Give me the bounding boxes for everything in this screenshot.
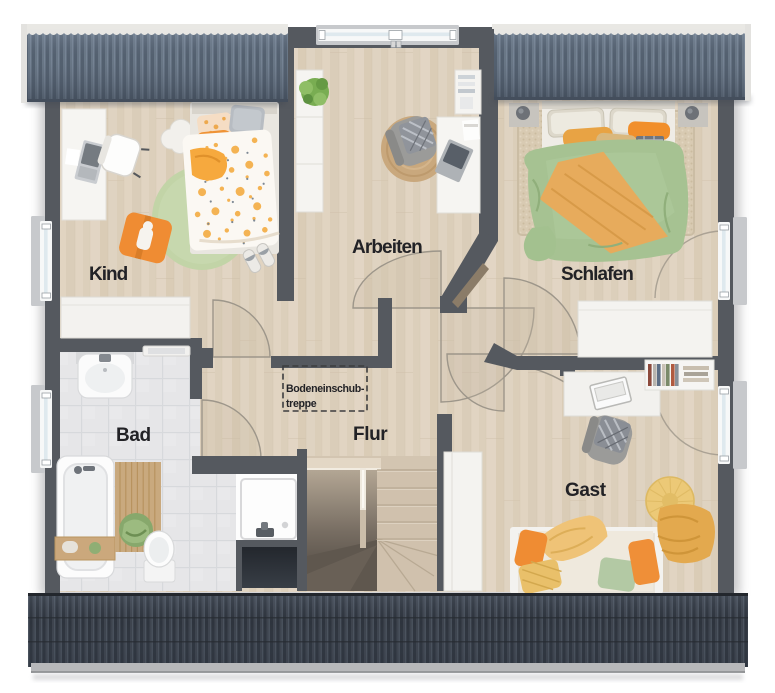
svg-text:Kind: Kind (89, 264, 128, 285)
svg-text:Bad: Bad (116, 425, 151, 446)
svg-text:Gast: Gast (565, 480, 607, 501)
svg-text:treppe: treppe (286, 398, 317, 410)
svg-text:Arbeiten: Arbeiten (352, 237, 422, 258)
svg-text:Flur: Flur (353, 424, 388, 445)
svg-text:Bodeneinschub-: Bodeneinschub- (286, 383, 365, 395)
svg-text:Schlafen: Schlafen (561, 264, 633, 285)
